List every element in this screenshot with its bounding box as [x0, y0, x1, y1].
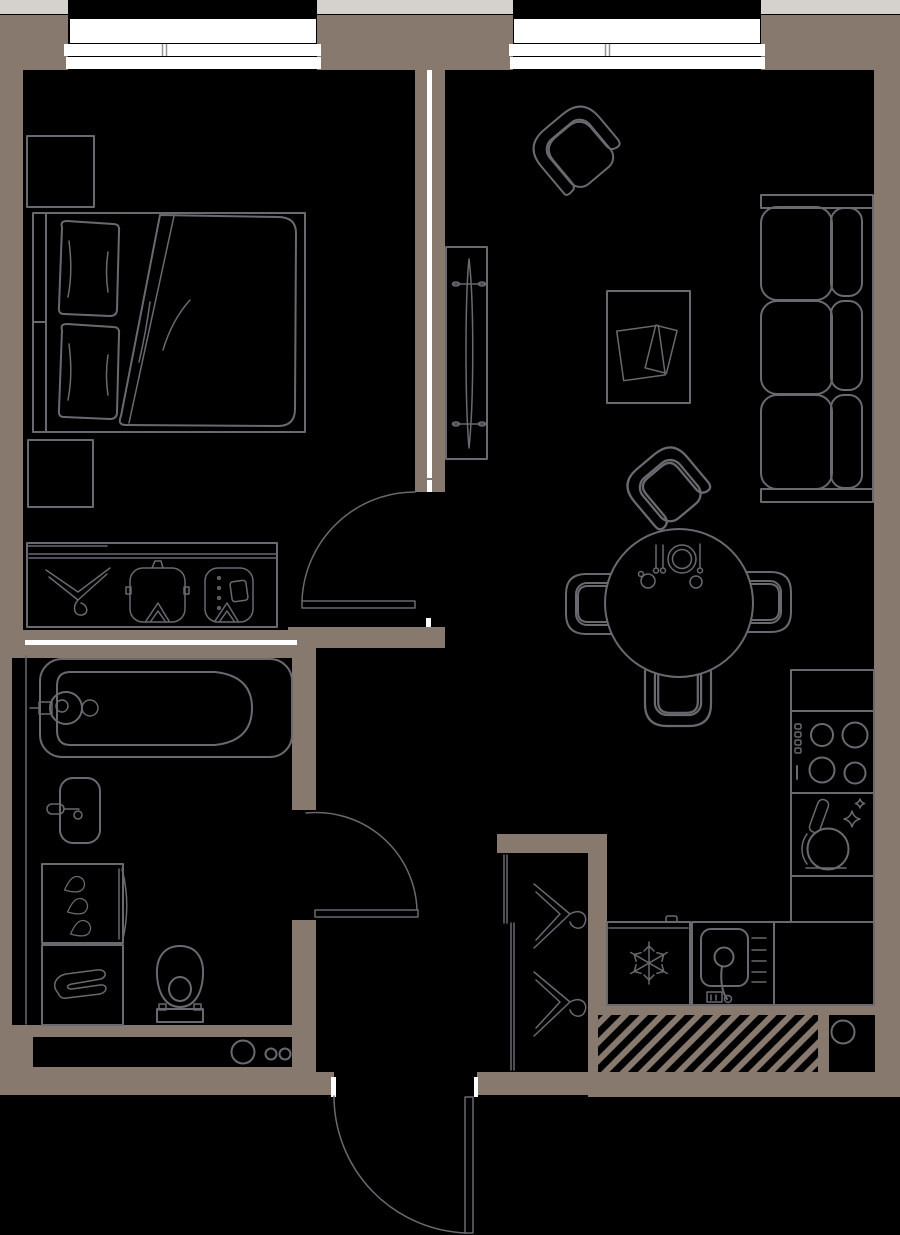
floor-plan [0, 0, 900, 1235]
floor-plan-svg [0, 0, 900, 1235]
entrance-jamb-right [474, 1077, 478, 1097]
vent-duct-hatch-pattern [598, 1015, 818, 1072]
service-shafts [598, 1015, 875, 1072]
window-bedroom [64, 19, 321, 69]
entrance-jamb-left [331, 1077, 336, 1097]
window-living [509, 19, 765, 69]
dining-table [605, 529, 753, 677]
